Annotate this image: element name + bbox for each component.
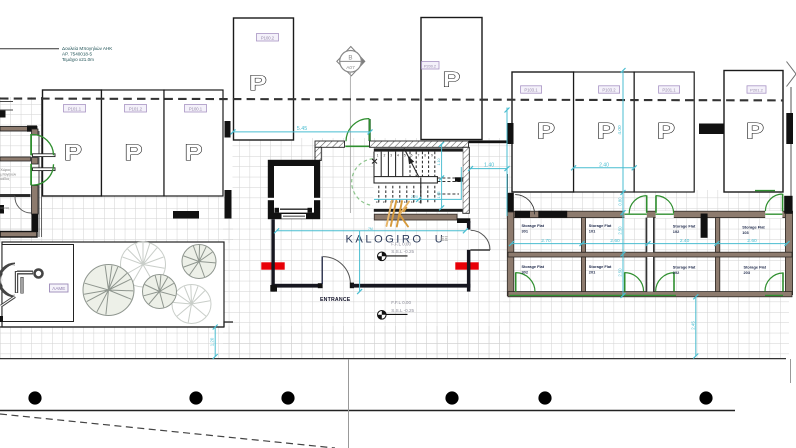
svg-text:15: 15 <box>383 200 387 204</box>
svg-text:2.60: 2.60 <box>747 238 757 244</box>
svg-text:B: B <box>348 54 352 61</box>
svg-text:1.40: 1.40 <box>484 163 494 169</box>
svg-text:8: 8 <box>424 153 426 157</box>
svg-text:ΕΞ: ΕΞ <box>441 237 449 243</box>
svg-text:1.05: 1.05 <box>437 192 441 199</box>
svg-text:Δουλεία Μπογηλών ΑΗΚ: Δουλεία Μπογηλών ΑΗΚ <box>62 45 113 51</box>
svg-text:9: 9 <box>431 153 433 157</box>
svg-text:P: P <box>185 141 203 165</box>
svg-text:P103.2: P103.2 <box>602 88 616 93</box>
svg-text:302: 302 <box>522 270 529 275</box>
svg-text:P101.1: P101.1 <box>68 106 82 111</box>
svg-text:7: 7 <box>417 153 419 157</box>
svg-text:P100.2: P100.2 <box>261 35 275 40</box>
svg-text:4.00: 4.00 <box>617 125 623 135</box>
svg-text:301: 301 <box>522 229 529 234</box>
svg-text:2.40: 2.40 <box>599 162 609 168</box>
svg-text:κάδος: κάδος <box>1 177 10 181</box>
svg-text:Storage Flat: Storage Flat <box>742 225 765 230</box>
svg-text:P: P <box>125 141 143 165</box>
svg-text:102: 102 <box>673 229 680 234</box>
svg-text:P201.2: P201.2 <box>750 88 763 93</box>
svg-text:0.80: 0.80 <box>617 197 622 206</box>
svg-text:4: 4 <box>397 153 399 157</box>
svg-text:Storage Flat: Storage Flat <box>673 265 696 270</box>
svg-text:ENTRANCE: ENTRANCE <box>320 297 351 303</box>
svg-text:10: 10 <box>418 200 422 204</box>
svg-text:2.60: 2.60 <box>610 238 620 244</box>
svg-text:3: 3 <box>390 153 392 157</box>
svg-text:P: P <box>597 119 615 143</box>
svg-text:13: 13 <box>397 200 401 204</box>
svg-text:P: P <box>537 119 555 143</box>
svg-text:201: 201 <box>589 270 596 275</box>
svg-text:2.50: 2.50 <box>617 226 622 235</box>
svg-text:203: 203 <box>744 270 751 275</box>
svg-text:μπογηλών: μπογηλών <box>1 173 17 177</box>
svg-text:6: 6 <box>411 153 413 157</box>
svg-text:2.45: 2.45 <box>691 321 696 330</box>
svg-text:16: 16 <box>376 200 380 204</box>
svg-text:P: P <box>443 68 460 92</box>
svg-text:ΑΡ. 7540018-5: ΑΡ. 7540018-5 <box>62 52 93 57</box>
svg-text:Storage Flat: Storage Flat <box>522 223 545 228</box>
svg-text:P200.2: P200.2 <box>424 64 436 68</box>
svg-text:P100.1: P100.1 <box>189 106 203 111</box>
svg-text:2.40: 2.40 <box>680 238 690 244</box>
svg-text:F.F.L 0.00: F.F.L 0.00 <box>391 241 411 246</box>
svg-text:P: P <box>746 119 764 143</box>
svg-text:2: 2 <box>383 153 385 157</box>
svg-text:P101.2: P101.2 <box>129 106 143 111</box>
svg-text:1: 1 <box>377 153 379 157</box>
svg-text:Storage Flat: Storage Flat <box>589 223 612 228</box>
svg-text:103: 103 <box>742 230 749 235</box>
svg-text:KALOGIRO: KALOGIRO <box>346 234 424 246</box>
svg-text:ΛΑΜΕ: ΛΑΜΕ <box>52 286 65 291</box>
svg-text:202: 202 <box>673 270 680 275</box>
svg-text:2.70: 2.70 <box>541 238 551 244</box>
svg-text:κήνος: κήνος <box>1 206 10 210</box>
svg-text:F.F.L 0.00: F.F.L 0.00 <box>391 300 411 305</box>
svg-text:7M: 7M <box>368 227 373 231</box>
svg-text:5: 5 <box>404 153 406 157</box>
svg-text:Χώρος: Χώρος <box>1 168 12 172</box>
svg-text:2.50: 2.50 <box>617 268 622 277</box>
svg-text:1.10: 1.10 <box>437 159 441 166</box>
svg-text:Τεμάχιο x21.0m: Τεμάχιο x21.0m <box>62 56 94 62</box>
svg-text:Storage Flat: Storage Flat <box>589 264 612 269</box>
svg-text:P: P <box>657 119 675 143</box>
svg-text:P103.1: P103.1 <box>524 88 538 93</box>
svg-text:Storage Flat: Storage Flat <box>744 265 767 270</box>
svg-text:S.S.L -0.25: S.S.L -0.25 <box>391 249 414 254</box>
svg-text:11: 11 <box>411 200 414 204</box>
svg-text:2.20: 2.20 <box>411 195 418 199</box>
svg-text:5.45: 5.45 <box>297 126 308 132</box>
svg-text:Storage Flat: Storage Flat <box>522 264 545 269</box>
svg-text:S.S.L -0.25: S.S.L -0.25 <box>391 308 414 313</box>
svg-text:P: P <box>249 72 266 96</box>
svg-text:101: 101 <box>589 229 596 234</box>
svg-text:A07: A07 <box>346 65 355 71</box>
svg-text:Storage Flat: Storage Flat <box>673 224 696 229</box>
svg-text:P: P <box>64 141 82 165</box>
svg-text:P201.1: P201.1 <box>662 88 676 93</box>
svg-text:1.20: 1.20 <box>209 337 214 346</box>
